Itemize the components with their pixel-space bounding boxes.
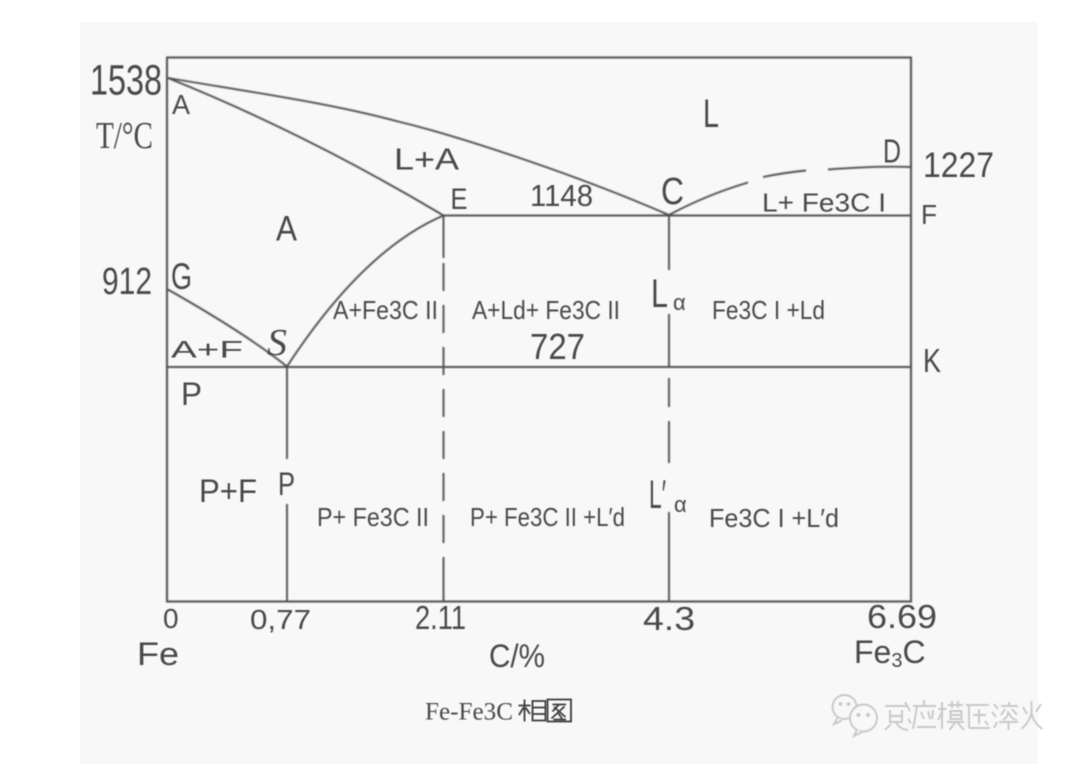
svg-text:S: S: [267, 322, 287, 364]
svg-text:L′: L′: [649, 473, 666, 517]
svg-text:Fe: Fe: [137, 636, 179, 672]
svg-text:A+Ld+ Fe3C II: A+Ld+ Fe3C II: [472, 295, 620, 325]
svg-text:L+ Fe3C I: L+ Fe3C I: [762, 188, 886, 218]
svg-text:0: 0: [163, 603, 179, 634]
svg-text:Fe3C I +Ld: Fe3C I +Ld: [712, 295, 825, 325]
svg-text:L+A: L+A: [394, 142, 459, 177]
svg-text:F: F: [921, 199, 937, 230]
svg-text:A: A: [276, 210, 298, 249]
svg-text:4.3: 4.3: [643, 600, 695, 637]
svg-text:P+ Fe3C II: P+ Fe3C II: [317, 502, 429, 532]
svg-text:K: K: [923, 342, 941, 379]
svg-text:Fe3C: Fe3C: [854, 634, 926, 672]
svg-text:P: P: [181, 376, 202, 412]
svg-text:G: G: [171, 256, 192, 297]
svg-text:C: C: [661, 171, 684, 213]
svg-text:0,77: 0,77: [250, 604, 311, 635]
svg-text:1148: 1148: [530, 178, 593, 213]
svg-text:A: A: [172, 89, 190, 120]
svg-text:α: α: [674, 492, 687, 517]
svg-text:P+F: P+F: [199, 473, 257, 509]
svg-text:α: α: [673, 290, 686, 315]
svg-text:L: L: [651, 272, 668, 316]
svg-text:E: E: [451, 183, 468, 216]
svg-text:2.11: 2.11: [415, 599, 466, 636]
svg-text:912: 912: [102, 261, 152, 303]
svg-text:1538: 1538: [90, 57, 162, 105]
svg-text:A+Fe3C II: A+Fe3C II: [333, 295, 438, 325]
svg-text:C/%: C/%: [489, 638, 545, 674]
svg-text:Fe3C I +L′d: Fe3C I +L′d: [709, 503, 839, 533]
svg-text:T/°C: T/°C: [96, 115, 153, 157]
svg-text:L: L: [703, 92, 719, 136]
svg-text:P+ Fe3C II +L′d: P+ Fe3C II +L′d: [470, 502, 625, 532]
svg-text:Fe-Fe3C: Fe-Fe3C: [425, 697, 513, 726]
svg-text:P: P: [278, 466, 295, 502]
svg-text:A+F: A+F: [171, 337, 243, 364]
svg-text:727: 727: [530, 326, 585, 367]
svg-text:D: D: [883, 133, 901, 170]
svg-text:6.69: 6.69: [867, 598, 937, 635]
svg-text:1227: 1227: [923, 146, 994, 185]
